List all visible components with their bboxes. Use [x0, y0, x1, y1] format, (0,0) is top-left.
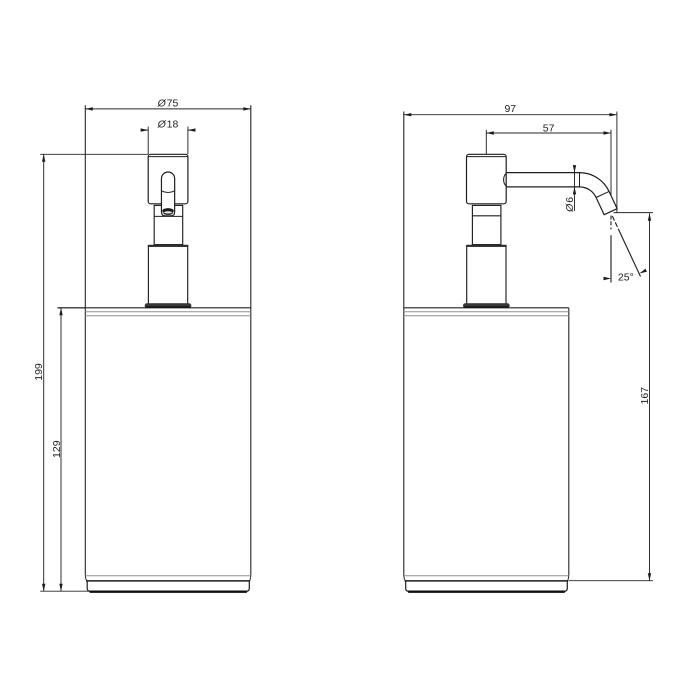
svg-text:25°: 25° [618, 272, 634, 284]
svg-text:57: 57 [543, 122, 555, 134]
svg-text:167: 167 [639, 387, 651, 405]
svg-text:129: 129 [51, 440, 63, 458]
svg-text:97: 97 [504, 103, 516, 115]
svg-text:Ø 75: Ø 75 [157, 98, 179, 110]
svg-text:199: 199 [33, 363, 45, 381]
svg-text:Ø 18: Ø 18 [157, 118, 179, 130]
svg-text:Ø 6: Ø 6 [564, 197, 576, 213]
